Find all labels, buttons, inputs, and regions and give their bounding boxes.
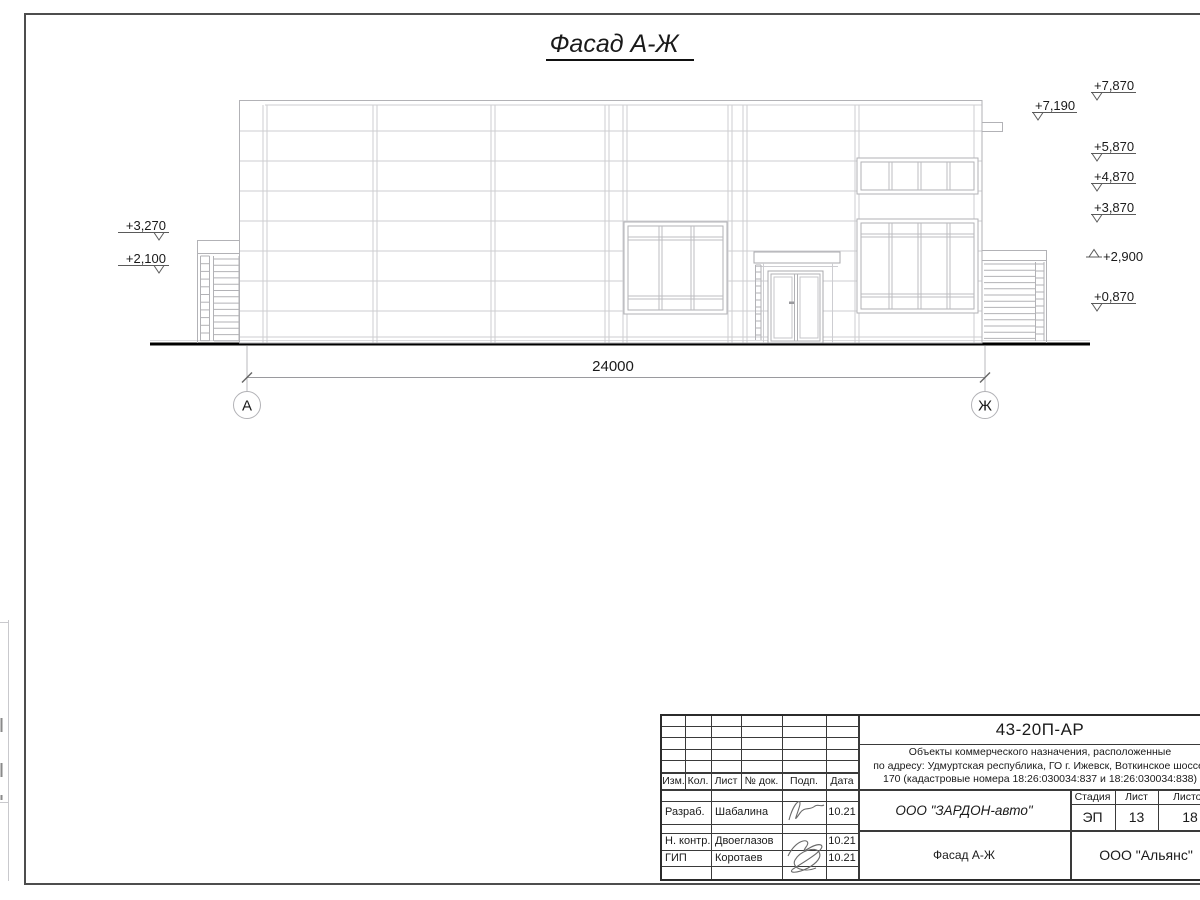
customer-company: ООО "ЗАРДОН-авто" [858, 791, 1070, 830]
entrance-canopy [754, 252, 840, 263]
cornice [982, 123, 1003, 132]
left-wing-louver-slats [214, 259, 239, 341]
project-description-line3: 170 (кадастровые номера 18:26:030034:837… [883, 773, 1197, 787]
design-org: ООО "Альянс" [1070, 832, 1200, 879]
elevation-value: +5,870 [1094, 139, 1134, 154]
signature-shabalina [789, 802, 824, 820]
stage-value: ЭП [1070, 805, 1115, 830]
left-wing [198, 241, 240, 344]
entrance-door [768, 271, 823, 343]
project-description-line2: по адресу: Удмуртская республика, ГО г. … [873, 760, 1200, 774]
sheet-value: 13 [1115, 805, 1158, 830]
sheet-title: Фасад А-Ж [858, 832, 1070, 879]
elevation-value: +7,870 [1094, 78, 1134, 93]
sheets-label: Листов [1158, 790, 1200, 804]
stage-label: Стадия [1070, 790, 1115, 804]
sheet-label: Лист [1115, 790, 1158, 804]
right-wing-cap [982, 251, 1047, 261]
doc-number: 43-20П-АР [858, 716, 1200, 744]
drawing-sheet: { "page": { "title": "Фасад А-Ж" }, "dra… [0, 0, 1200, 900]
entrance-side-ticks [756, 265, 762, 340]
elevation-value: +3,870 [1094, 200, 1134, 215]
elevation-marks-right: +7,870 +7,190 +5,870 +4,870 +3,870 +2,90… [1032, 78, 1143, 311]
elevation-marks-left: +3,270 +2,100 [118, 218, 169, 273]
door-handle [789, 302, 794, 305]
elevation-value: +0,870 [1094, 289, 1134, 304]
elevation-value: +3,270 [126, 218, 166, 233]
dimension-value: 24000 [592, 358, 634, 375]
right-wing-ladder-rungs [1036, 264, 1044, 334]
axis-label-zh: Ж [978, 398, 992, 415]
entrance [754, 252, 840, 343]
signature-dvoeglazov-korotaev [788, 841, 822, 872]
project-description: Объекты коммерческого назначения, распол… [858, 744, 1200, 789]
margin-lines [0, 620, 9, 881]
left-wing-cap [198, 241, 240, 254]
elevation-value: +7,190 [1035, 98, 1075, 113]
window-left-group [624, 222, 727, 314]
right-wing [982, 251, 1047, 344]
project-description-line1: Объекты коммерческого назначения, распол… [909, 746, 1171, 760]
window-right-main [857, 219, 978, 313]
sheets-value: 18 [1158, 805, 1200, 830]
facade-drawing: 24000 А Ж +3,270 +2,100 +7,870 +7,190 +5… [0, 0, 1200, 470]
left-wing-ladder-rungs [201, 256, 210, 341]
axis-label-a: А [242, 398, 252, 415]
elevation-value: +2,100 [126, 251, 166, 266]
elevation-value: +2,900 [1103, 249, 1143, 264]
sheet-margin-marks [0, 600, 30, 890]
right-wing-louver-slats [984, 264, 1035, 338]
axis-bubbles: А Ж [234, 392, 999, 419]
elevation-value: +4,870 [1094, 169, 1134, 184]
title-block: Изм. Кол. Лист № док. Подп. Дата Разраб.… [660, 714, 1200, 881]
window-right-upper [857, 158, 978, 194]
